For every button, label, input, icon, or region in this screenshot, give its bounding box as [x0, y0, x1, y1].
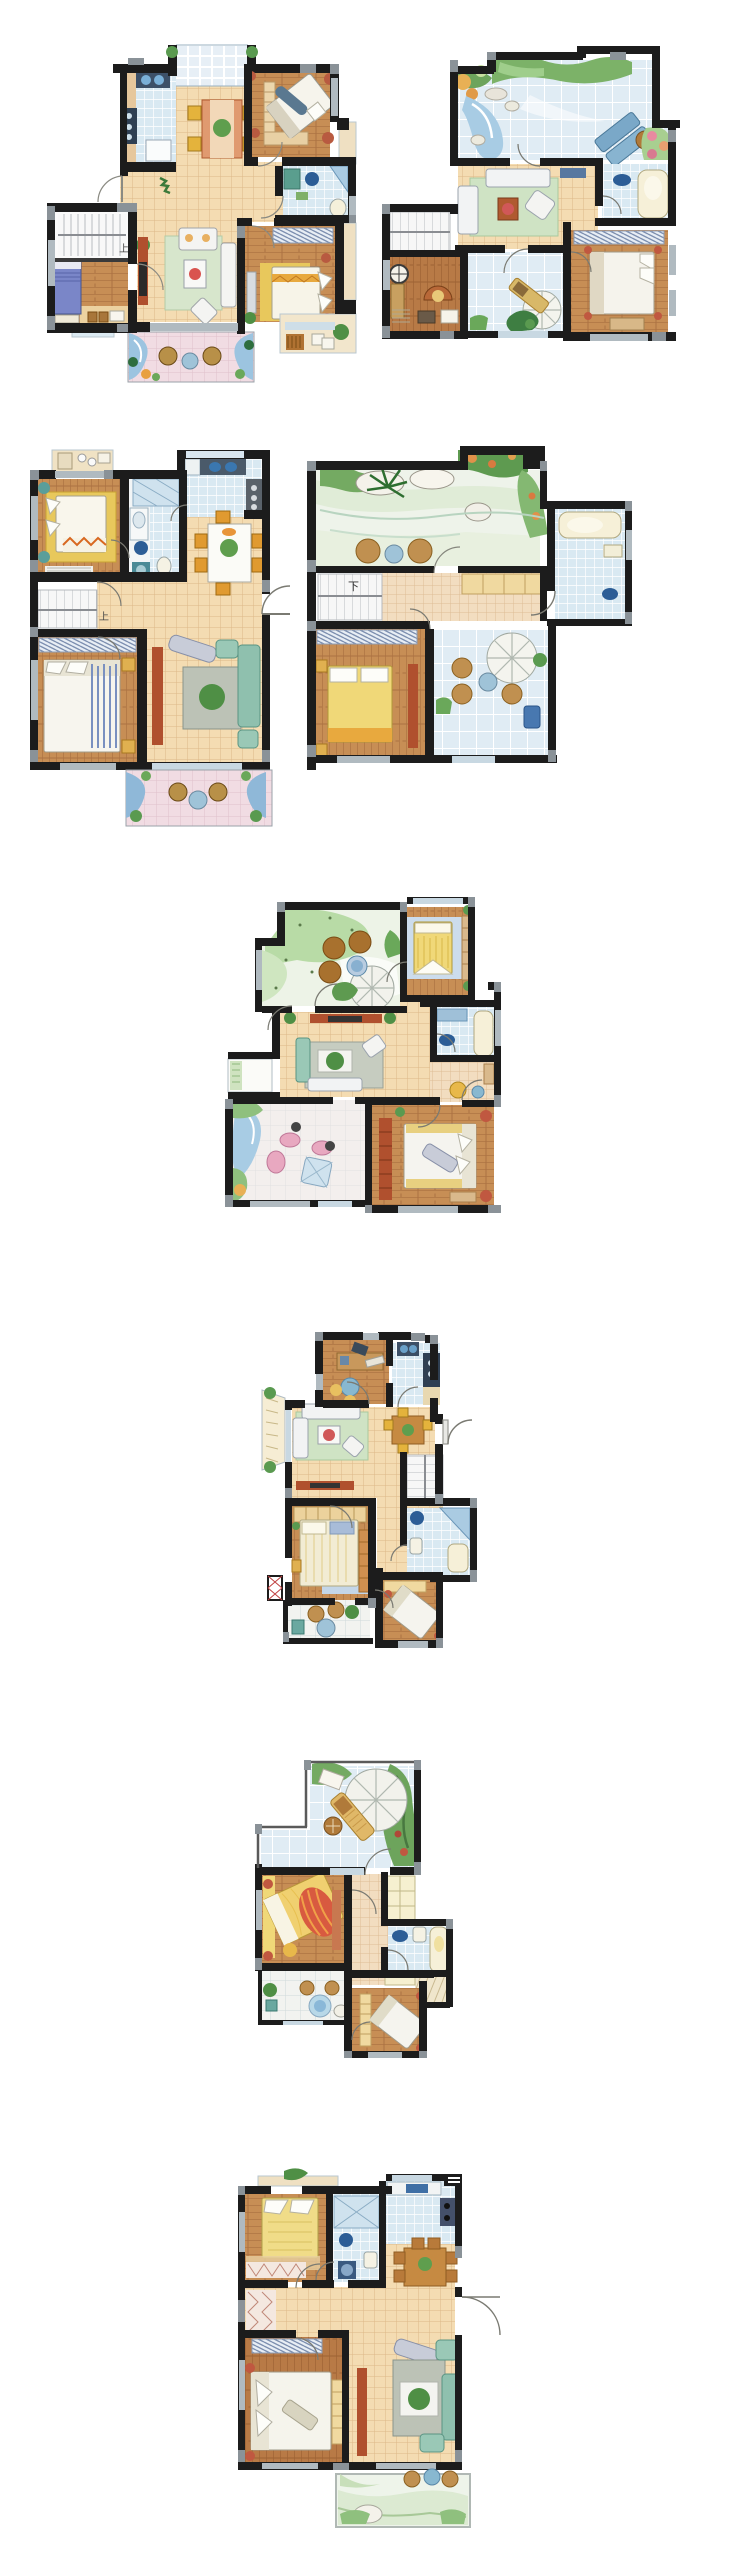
- svg-text:上: 上: [99, 611, 109, 623]
- svg-text:下: 下: [348, 581, 359, 593]
- svg-text:上: 上: [119, 243, 129, 255]
